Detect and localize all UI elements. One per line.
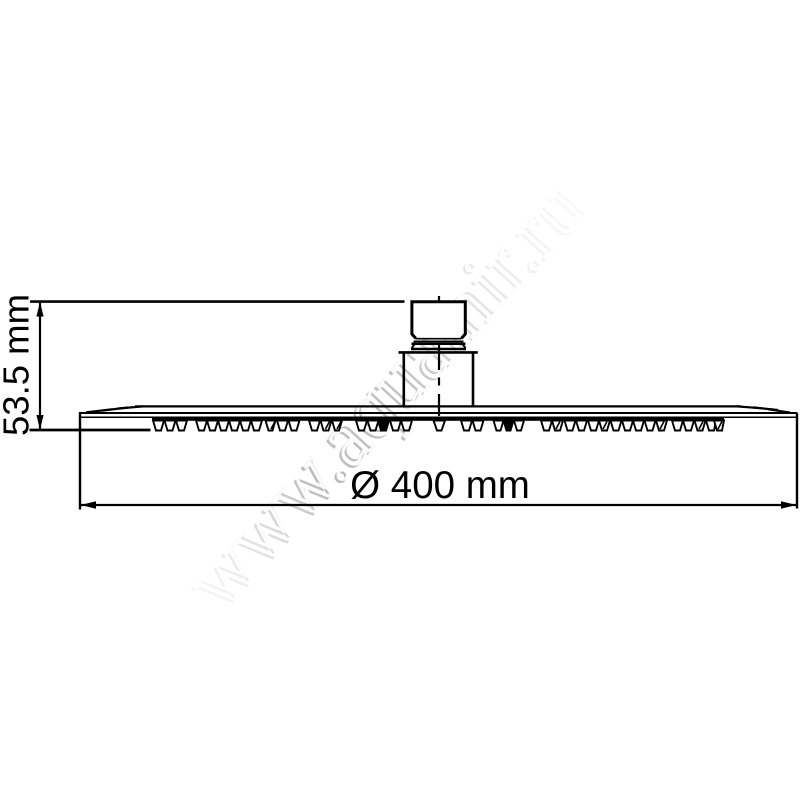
svg-text:www.aquamir.ru: www.aquamir.ru: [168, 160, 604, 624]
svg-text:53.5 mm: 53.5 mm: [0, 294, 37, 436]
svg-text:Ø 400 mm: Ø 400 mm: [350, 464, 530, 507]
